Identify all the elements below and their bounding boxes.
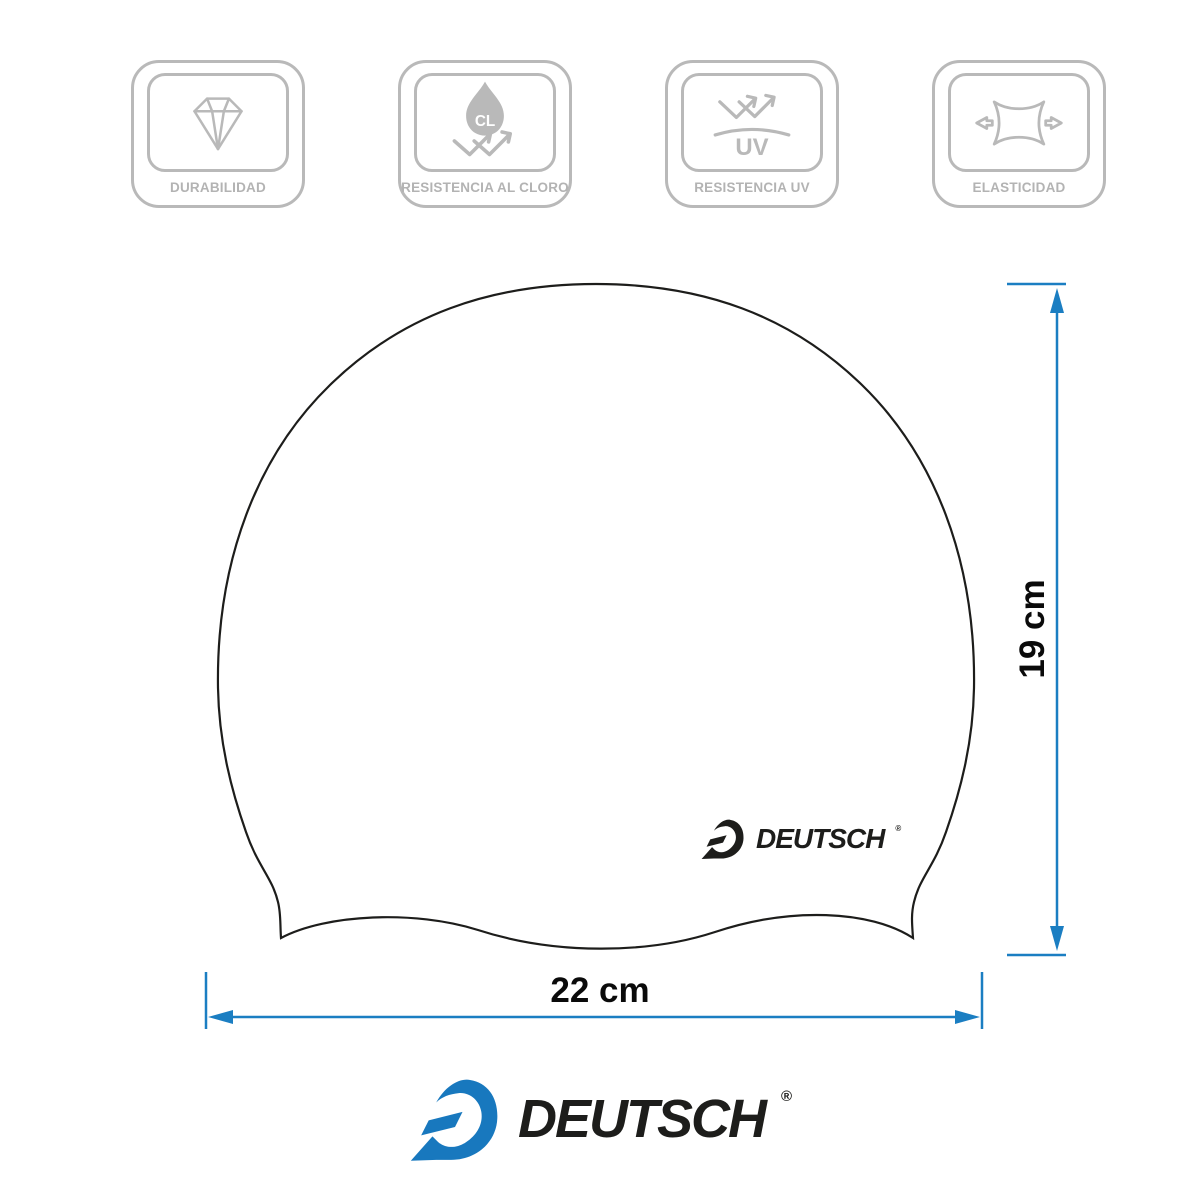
cap-registered-mark: ®: [895, 824, 901, 833]
deutsch-d-icon: [700, 818, 746, 859]
product-infographic: DURABILIDAD CL RESISTENCIA AL CLORO: [0, 0, 1200, 1200]
cap-brand-wordmark: DEUTSCH: [756, 823, 884, 855]
width-arrowhead-right: [955, 1010, 980, 1024]
deutsch-d-icon: [408, 1076, 502, 1161]
footer-brand-logo: DEUTSCH ®: [0, 1076, 1200, 1161]
footer-brand-wordmark: DEUTSCH: [518, 1088, 765, 1150]
width-arrowhead-left: [208, 1010, 233, 1024]
height-arrowhead-down: [1050, 926, 1064, 951]
width-dimension-label: 22 cm: [450, 971, 750, 1011]
height-arrowhead-up: [1050, 288, 1064, 313]
cap-brand-logo: DEUTSCH ®: [700, 818, 901, 859]
deutsch-d-mark-fill: [411, 1080, 498, 1161]
footer-registered-mark: ®: [781, 1088, 792, 1105]
height-dimension-label: 19 cm: [1013, 529, 1051, 729]
